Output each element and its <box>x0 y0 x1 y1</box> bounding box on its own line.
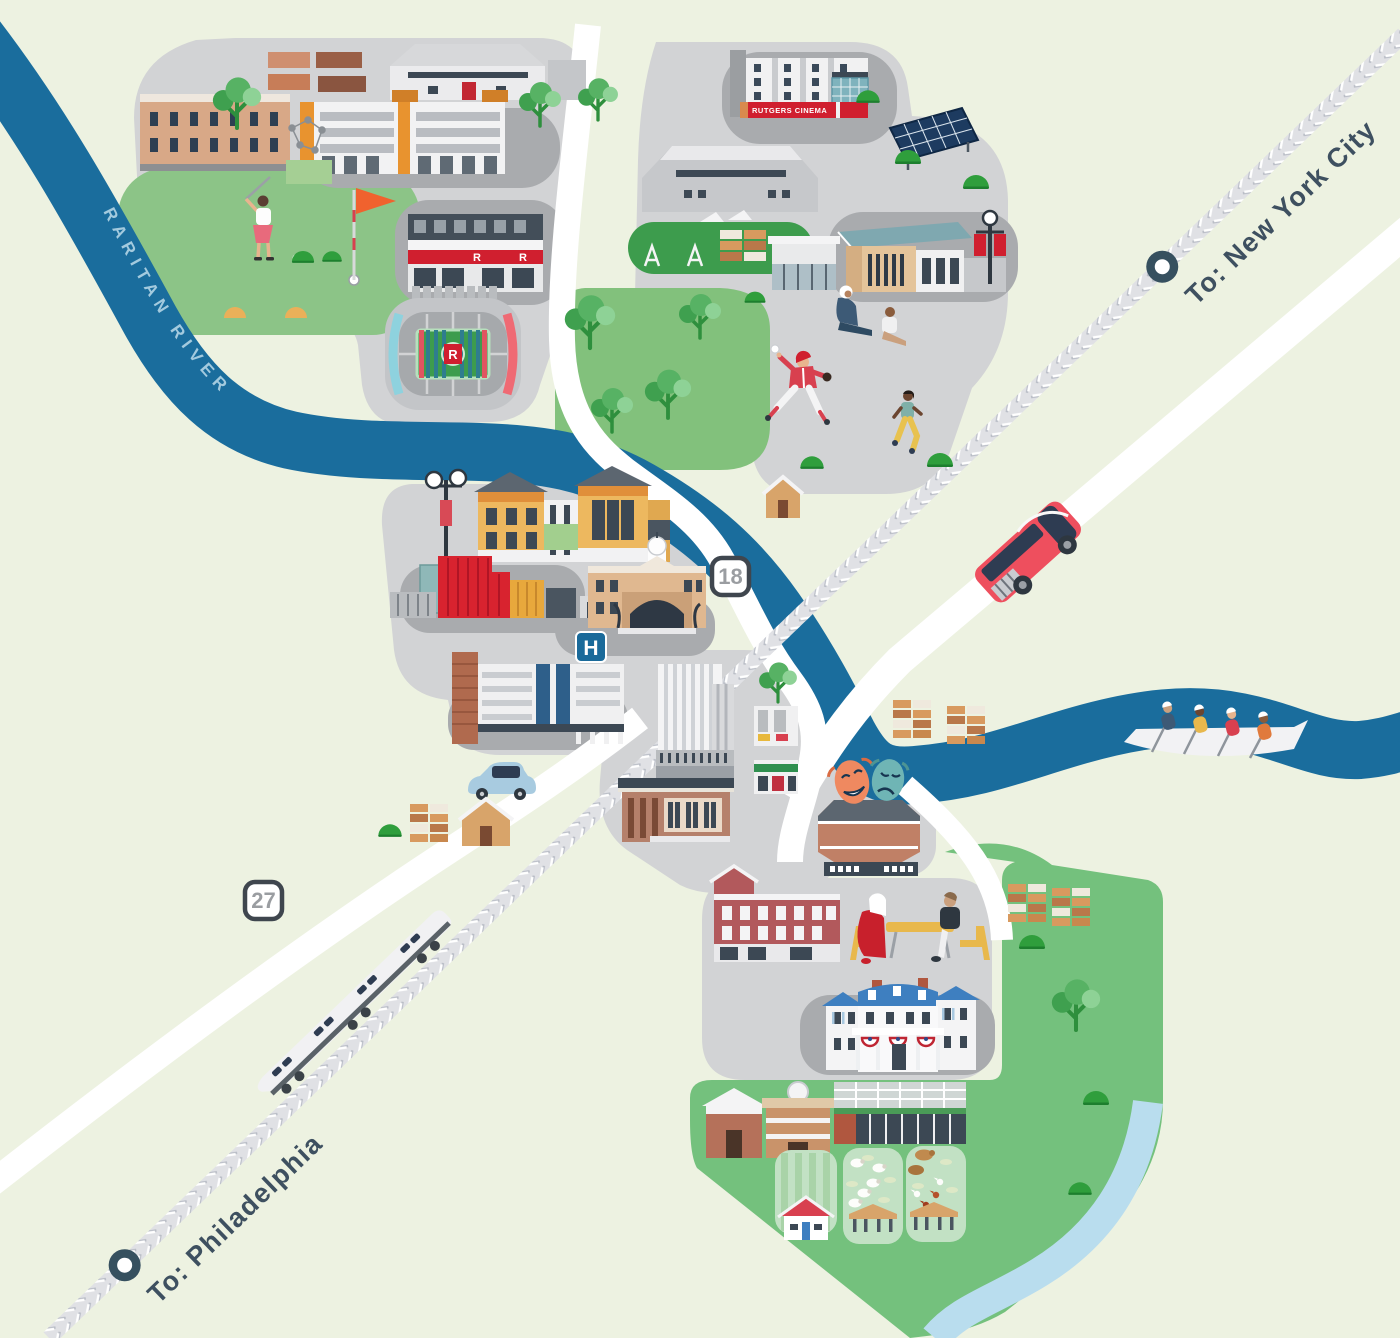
rutgers-cinema-building: RUTGERS CINEMA <box>730 50 868 118</box>
rutgers-cinema-sign: RUTGERS CINEMA <box>752 106 827 115</box>
storefront-r-sign: R <box>473 252 481 264</box>
svg-text:18: 18 <box>718 564 742 589</box>
sheep-pasture <box>843 1148 903 1244</box>
hospital-building <box>452 652 624 744</box>
route-shield-27: 27 <box>245 882 282 919</box>
glass-pavilion <box>834 1082 966 1144</box>
svg-text:27: 27 <box>251 888 275 913</box>
athletic-center <box>642 146 818 212</box>
stadium-r-logo: R <box>448 347 458 362</box>
farm-plots <box>775 1146 966 1244</box>
yard-connector <box>544 500 578 562</box>
football-stadium: R <box>385 286 521 410</box>
train-station <box>618 778 734 842</box>
storefront-small-1 <box>754 706 798 746</box>
storefront-small-2 <box>754 760 798 794</box>
crop-field <box>775 1150 837 1240</box>
retail-building-r: R R <box>408 214 543 292</box>
route-shield-18: 18 <box>712 558 749 595</box>
storefront-r-sign-2: R <box>519 252 527 264</box>
poultry-pasture <box>906 1146 966 1242</box>
illustrated-city-map: To: Philadelphia To: New York City 18 27 <box>0 0 1400 1338</box>
hospital-h: H <box>583 637 598 660</box>
map-canvas: To: Philadelphia To: New York City 18 27 <box>0 0 1400 1338</box>
